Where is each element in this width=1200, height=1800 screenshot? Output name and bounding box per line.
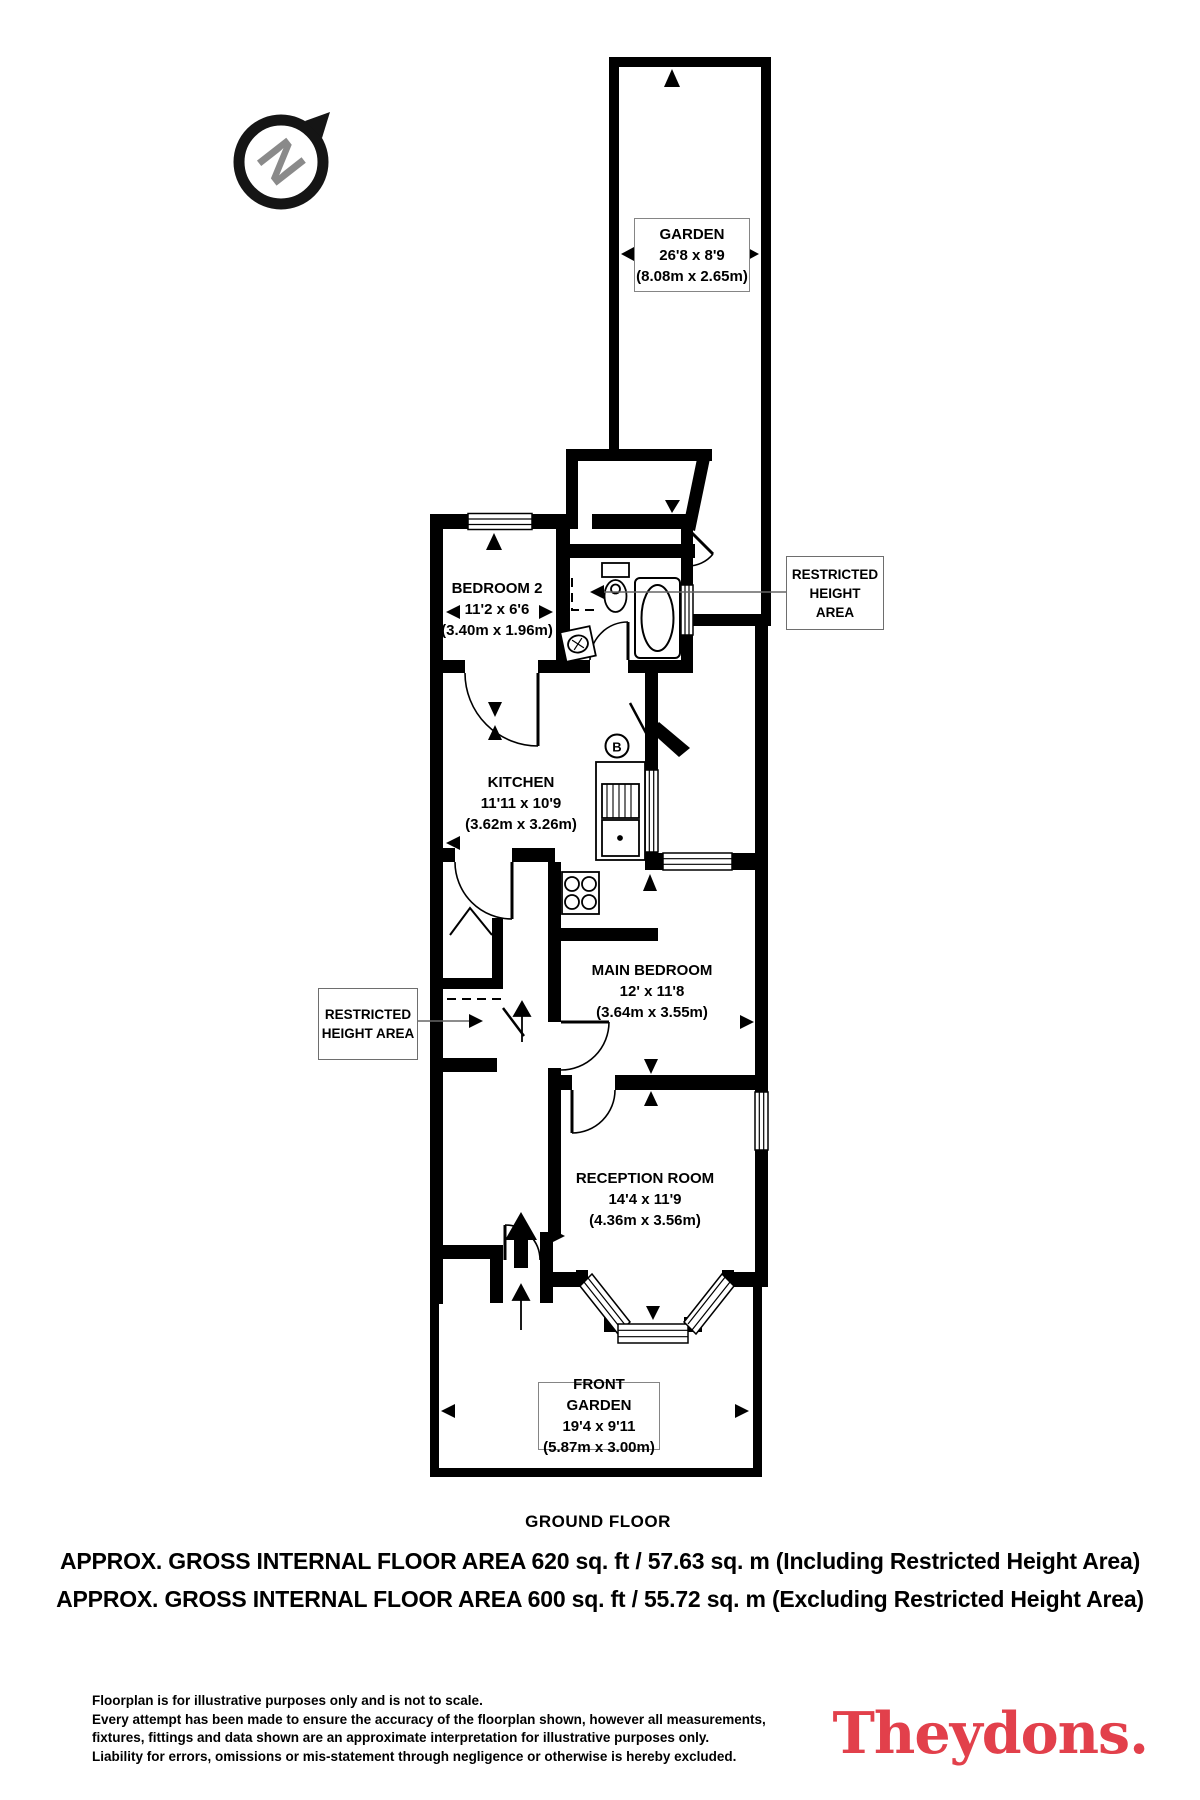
front-garden-metric: (5.87m x 3.00m): [539, 1437, 659, 1458]
leader-arrow-left-icon: [590, 585, 604, 599]
kitchen-window-icon: [645, 770, 658, 852]
kitchen-left-arrow-icon: [446, 836, 460, 850]
floor-area-line-2: APPROX. GROSS INTERNAL FLOOR AREA 600 sq…: [0, 1586, 1200, 1613]
main-bedroom-dims: 12' x 11'8: [592, 981, 713, 1002]
main-bedroom-metric: (3.64m x 3.55m): [592, 1002, 713, 1023]
bedroom2-door-icon: [465, 673, 538, 746]
bedroom2-window-icon: [468, 514, 532, 530]
main-bedroom-window-icon: [663, 853, 732, 870]
bay-down-arrow-icon: [646, 1306, 660, 1320]
basin-icon: [560, 626, 596, 662]
reception-name: RECEPTION ROOM: [576, 1168, 714, 1189]
front-garden-name: FRONT GARDEN: [539, 1374, 659, 1416]
entrance-arrows: [505, 1002, 537, 1330]
compass-icon: N: [239, 112, 330, 204]
kitchen-sink-icon: [596, 762, 645, 860]
kitchen-dims: 11'11 x 10'9: [465, 793, 577, 814]
disclaimer-line-4: Liability for errors, omissions or mis-s…: [92, 1748, 766, 1767]
floorplan-page: N: [0, 0, 1200, 1800]
main-bedroom-door-icon: [561, 1022, 609, 1070]
bedroom2-name: BEDROOM 2: [441, 578, 553, 599]
hall-up-arrow-icon: [514, 1002, 530, 1042]
bedroom2-dims: 11'2 x 6'6: [441, 599, 553, 620]
toilet-icon: [602, 563, 629, 612]
porch-down-arrow-icon: [665, 500, 680, 513]
reception-metric: (4.36m x 3.56m): [576, 1210, 714, 1231]
garden-up-arrow-icon: [664, 69, 680, 87]
bedroom2-label: BEDROOM 2 11'2 x 6'6 (3.40m x 1.96m): [441, 578, 553, 641]
garden-label: GARDEN 26'8 x 8'9 (8.08m x 2.65m): [634, 218, 750, 292]
boiler-icon: B: [606, 735, 629, 758]
bedroom2-metric: (3.40m x 1.96m): [441, 620, 553, 641]
reception-dims: 14'4 x 11'9: [576, 1189, 714, 1210]
garden-left-arrow-icon: [621, 247, 634, 261]
reception-door-icon: [572, 1090, 615, 1133]
bathtub-icon: [635, 578, 680, 658]
front-entrance-arrow-icon: [505, 1212, 537, 1268]
disclaimer: Floorplan is for illustrative purposes o…: [92, 1692, 766, 1766]
garden-metric: (8.08m x 2.65m): [635, 266, 749, 287]
reception-label: RECEPTION ROOM 14'4 x 11'9 (4.36m x 3.56…: [576, 1168, 714, 1231]
bedroom2-up-arrow-icon: [486, 533, 502, 550]
disclaimer-line-3: fixtures, fittings and data shown are an…: [92, 1729, 766, 1748]
floor-area-line-1: APPROX. GROSS INTERNAL FLOOR AREA 620 sq…: [0, 1548, 1200, 1575]
opening-marker-kitchen: [488, 702, 502, 740]
kitchen-name: KITCHEN: [465, 772, 577, 793]
kitchen-metric: (3.62m x 3.26m): [465, 814, 577, 835]
main-bedroom-label: MAIN BEDROOM 12' x 11'8 (3.64m x 3.55m): [592, 960, 713, 1023]
brand-logo: Theydons.: [833, 1700, 1149, 1767]
front-garden-label: FRONT GARDEN 19'4 x 9'11 (5.87m x 3.00m): [538, 1382, 660, 1450]
leader-arrow-right-icon: [469, 1014, 483, 1028]
boiler-letter: B: [612, 740, 621, 755]
front-garden-dims: 19'4 x 9'11: [539, 1416, 659, 1437]
front-garden-right-arrow-icon: [735, 1404, 749, 1418]
hob-icon: [562, 872, 599, 914]
disclaimer-line-2: Every attempt has been made to ensure th…: [92, 1711, 766, 1730]
restricted-height-label-left: RESTRICTED HEIGHT AREA: [318, 988, 418, 1060]
kitchen-label: KITCHEN 11'11 x 10'9 (3.62m x 3.26m): [465, 772, 577, 835]
floor-title: GROUND FLOOR: [525, 1512, 671, 1532]
main-bedroom-right-arrow-icon: [740, 1015, 754, 1029]
front-garden-left-arrow-icon: [441, 1404, 455, 1418]
garden-name: GARDEN: [635, 224, 749, 245]
kitchen-door-icon: [455, 862, 512, 919]
reception-side-window-icon: [755, 1092, 768, 1150]
restricted-height-label-right: RESTRICTED HEIGHT AREA: [786, 556, 884, 630]
garden-dims: 26'8 x 8'9: [635, 245, 749, 266]
porch-up-arrow-icon: [513, 1285, 529, 1330]
main-bedroom-name: MAIN BEDROOM: [592, 960, 713, 981]
disclaimer-line-1: Floorplan is for illustrative purposes o…: [92, 1692, 766, 1711]
main-bedroom-up-arrow-icon: [643, 874, 657, 891]
